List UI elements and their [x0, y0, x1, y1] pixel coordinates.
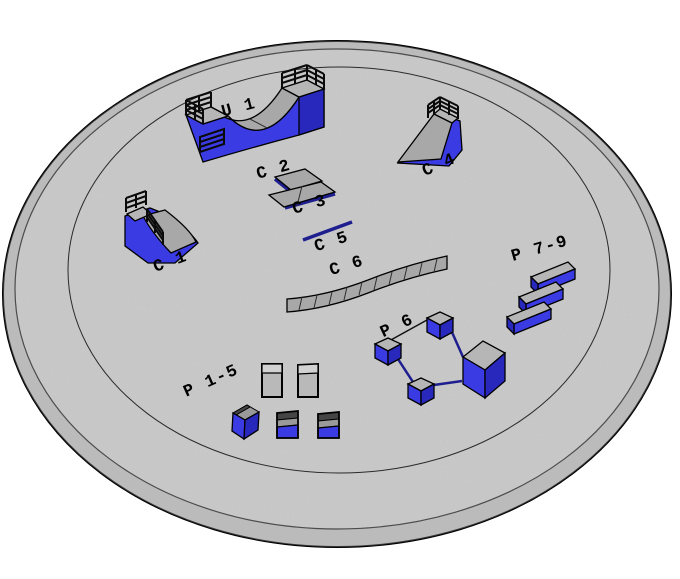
scene-canvas: U 1 C 1 C 2 C 3 C 4 C 5 C 6 [0, 0, 680, 579]
p1-panel-top [262, 364, 282, 373]
scene-viewport: U 1 C 1 C 2 C 3 C 4 C 5 C 6 [0, 0, 680, 579]
p4-box [277, 411, 298, 438]
p2-panel-top [298, 364, 318, 374]
p5-box [318, 412, 339, 438]
